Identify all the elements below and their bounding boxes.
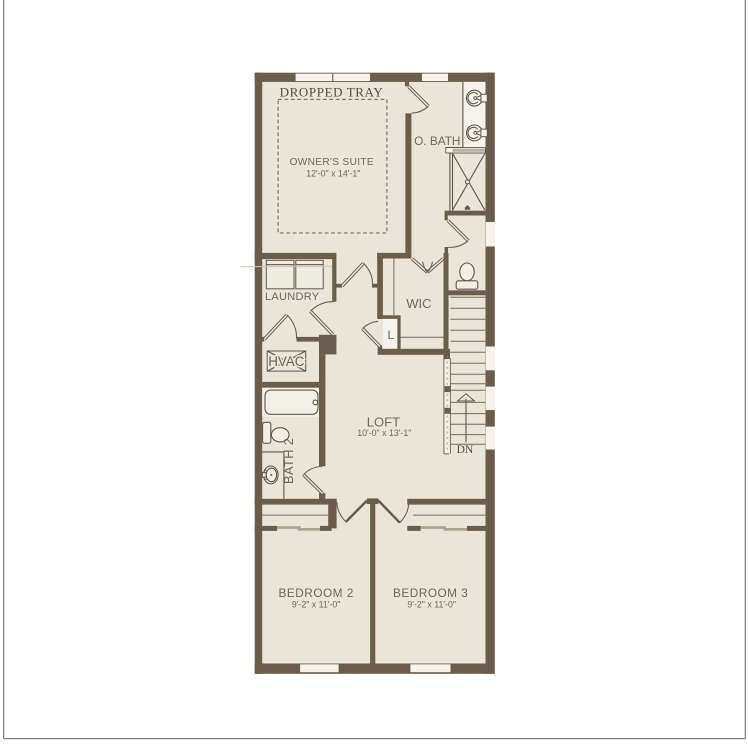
svg-text:O. BATH: O. BATH	[414, 134, 460, 148]
svg-text:9'-2" x 11'-0": 9'-2" x 11'-0"	[407, 600, 456, 610]
svg-text:BEDROOM 2: BEDROOM 2	[279, 586, 354, 600]
svg-text:L: L	[388, 328, 395, 342]
svg-text:WIC: WIC	[406, 296, 431, 311]
svg-text:DN: DN	[457, 444, 474, 456]
svg-text:DROPPED TRAY: DROPPED TRAY	[280, 85, 384, 100]
svg-text:OWNER'S SUITE: OWNER'S SUITE	[290, 157, 374, 168]
svg-text:9'-2" x 11'-0": 9'-2" x 11'-0"	[292, 600, 341, 610]
svg-text:10'-0" x 13'-1": 10'-0" x 13'-1"	[357, 428, 411, 438]
svg-text:HVAC: HVAC	[268, 354, 305, 369]
svg-text:BATH 2: BATH 2	[281, 438, 296, 484]
svg-text:BEDROOM 3: BEDROOM 3	[393, 586, 468, 600]
svg-text:LAUNDRY: LAUNDRY	[265, 291, 320, 303]
svg-text:12'-0" x 14'-1": 12'-0" x 14'-1"	[306, 168, 360, 178]
